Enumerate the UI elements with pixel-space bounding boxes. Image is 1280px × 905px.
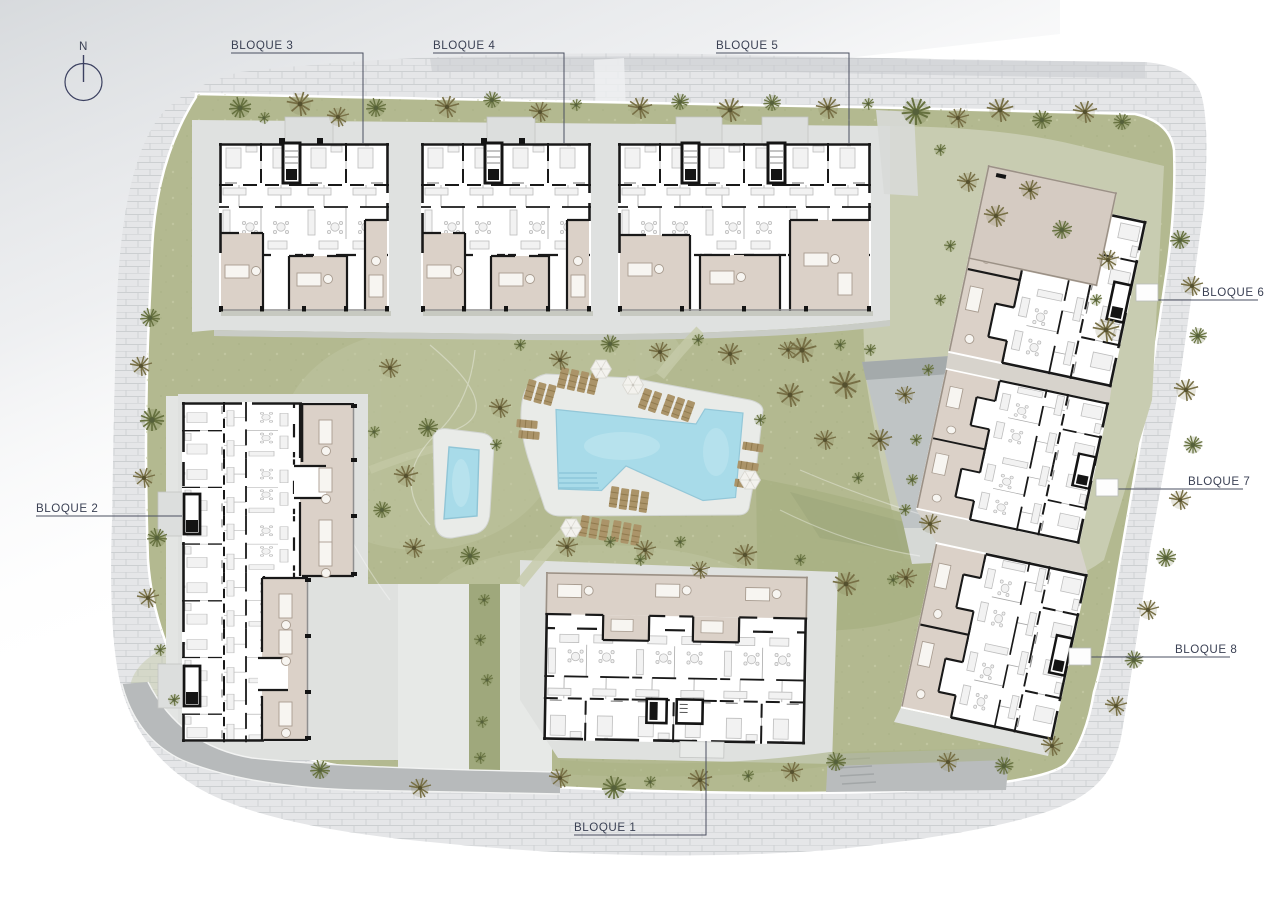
svg-text:N: N bbox=[79, 40, 88, 53]
svg-text:BLOQUE 6: BLOQUE 6 bbox=[1202, 286, 1264, 299]
svg-text:BLOQUE 5: BLOQUE 5 bbox=[716, 39, 778, 52]
svg-text:BLOQUE 1: BLOQUE 1 bbox=[574, 821, 636, 834]
svg-text:BLOQUE 7: BLOQUE 7 bbox=[1188, 475, 1250, 488]
svg-text:BLOQUE 3: BLOQUE 3 bbox=[231, 39, 293, 52]
svg-text:BLOQUE 8: BLOQUE 8 bbox=[1175, 643, 1237, 656]
svg-text:BLOQUE 4: BLOQUE 4 bbox=[433, 39, 495, 52]
svg-text:BLOQUE 2: BLOQUE 2 bbox=[36, 502, 98, 515]
